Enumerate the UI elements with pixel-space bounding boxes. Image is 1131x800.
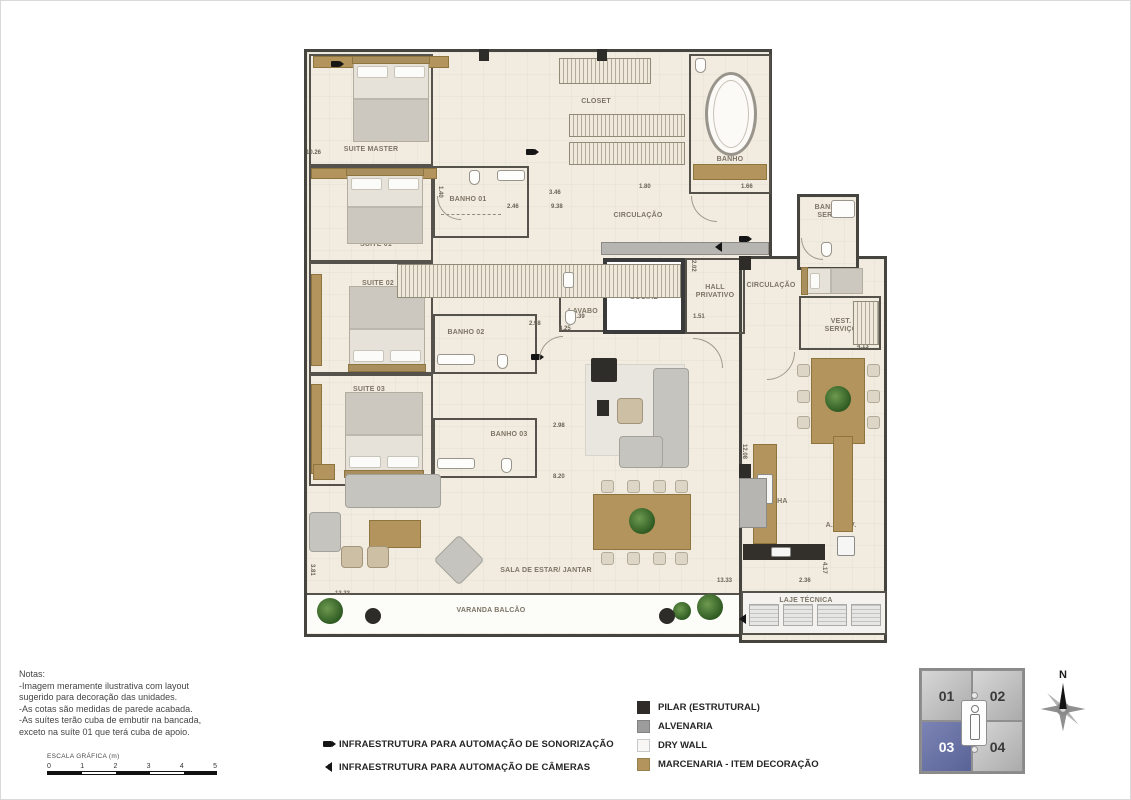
compass-rose-icon <box>1035 681 1091 737</box>
notes-title: Notas: <box>19 669 309 681</box>
kitchen-sink <box>771 547 791 557</box>
dining-chair <box>675 480 688 493</box>
dim: 12.08 <box>741 444 747 459</box>
legend-label: INFRAESTRUTURA PARA AUTOMAÇÃO DE SONORIZ… <box>339 739 614 750</box>
elevator-core-icon <box>961 700 987 746</box>
dim: 10.26 <box>306 150 321 156</box>
wardrobe <box>569 142 685 165</box>
dining-chair <box>675 552 688 565</box>
toilet <box>501 458 512 473</box>
tv-unit <box>591 358 617 382</box>
scale-tick: 0 <box>47 763 51 770</box>
shower <box>831 200 855 218</box>
dim: 13.33 <box>335 591 350 597</box>
sink-basin <box>563 272 574 288</box>
ac-condenser <box>783 604 813 626</box>
dim: 1.51 <box>693 314 705 320</box>
plant <box>673 602 691 620</box>
legend-row: MARCENARIA - ITEM DECORAÇÃO <box>637 758 819 771</box>
room-banho-02 <box>433 314 537 374</box>
bed-suite-03 <box>345 392 423 476</box>
room-banho-03 <box>433 418 537 478</box>
bed-suite-02 <box>349 286 425 370</box>
copa-chair <box>867 416 880 429</box>
copa-chair <box>797 416 810 429</box>
legend-label: INFRAESTRUTURA PARA AUTOMAÇÃO DE CÂMERAS <box>339 762 590 773</box>
sofa-chaise <box>619 436 663 468</box>
copa-chair <box>867 364 880 377</box>
bed-suite-master <box>353 58 429 142</box>
label-hall: HALL PRIVATIVO <box>692 284 738 300</box>
scale-ticks: 0 1 2 3 4 5 <box>47 763 217 770</box>
pillar <box>479 49 489 61</box>
camera-icon <box>331 61 340 67</box>
floor-drain <box>365 608 381 624</box>
dining-chair <box>601 552 614 565</box>
dim: 9.38 <box>551 204 563 210</box>
alvenaria-swatch <box>637 720 650 733</box>
sink-basin <box>437 458 475 469</box>
label-varanda: VARANDA BALCÃO <box>457 607 526 615</box>
alvenaria-block <box>739 478 767 528</box>
scale-tick: 3 <box>147 763 151 770</box>
dining-chair <box>627 552 640 565</box>
scale-label: ESCALA GRÁFICA (m) <box>47 753 227 760</box>
page: SUITE MASTER SUITE 01 SUITE 02 SUITE 03 … <box>0 0 1131 800</box>
scale-bar: ESCALA GRÁFICA (m) 0 1 2 3 4 5 <box>47 753 227 775</box>
scale-bar-graphic <box>47 771 217 775</box>
dining-chair <box>627 480 640 493</box>
marcenaria-swatch <box>637 758 650 771</box>
legend-row: PILAR (ESTRUTURAL) <box>637 701 819 714</box>
unit-keyplan: 01 02 03 04 <box>919 668 1025 774</box>
scale-tick: 4 <box>180 763 184 770</box>
dim: 1.66 <box>741 184 753 190</box>
legend-row: ALVENARIA <box>637 720 819 733</box>
vanity <box>693 164 767 180</box>
copa-chair <box>797 364 810 377</box>
camera-icon <box>323 738 339 750</box>
legend-label: DRY WALL <box>658 740 707 751</box>
notes-line: sugerido para decoração das unidades. <box>19 692 309 704</box>
notes: Notas: -Imagem meramente ilustrativa com… <box>19 669 309 738</box>
bed-service <box>803 268 863 294</box>
wardrobe <box>559 58 651 84</box>
ac-condenser <box>817 604 847 626</box>
elevator-dot <box>971 746 978 753</box>
pouf <box>341 546 363 568</box>
scale-tick: 1 <box>80 763 84 770</box>
scale-tick: 5 <box>213 763 217 770</box>
floor-plan: SUITE MASTER SUITE 01 SUITE 02 SUITE 03 … <box>301 46 901 646</box>
dining-chair <box>601 480 614 493</box>
label-banho: BANHO <box>717 156 744 164</box>
dim: 8.20 <box>553 474 565 480</box>
dim: 13.33 <box>717 578 732 584</box>
copa-chair <box>867 390 880 403</box>
compass-north-label: N <box>1035 669 1091 681</box>
pilar-swatch <box>637 701 650 714</box>
notes-line: -Imagem meramente ilustrativa com layout <box>19 681 309 693</box>
speaker-icon <box>323 761 339 773</box>
label-banho-03: BANHO 03 <box>491 431 528 439</box>
legend-row: DRY WALL <box>637 739 819 752</box>
legend-label: PILAR (ESTRUTURAL) <box>658 702 760 713</box>
speaker-icon <box>739 614 746 624</box>
dining-chair <box>653 480 666 493</box>
pillar <box>597 400 609 416</box>
shelving <box>853 301 879 345</box>
compass: N <box>1035 669 1091 741</box>
bathtub <box>705 72 757 156</box>
label-banho-02: BANHO 02 <box>448 329 485 337</box>
label-suite-master: SUITE MASTER <box>344 146 399 154</box>
service-counter <box>833 436 853 532</box>
washer <box>837 536 855 556</box>
side-table <box>313 464 335 480</box>
sofa <box>345 474 441 508</box>
notes-line: exceto na suíte 01 que terá cuba de apoi… <box>19 727 309 739</box>
pillar <box>739 256 751 270</box>
armchair <box>309 512 341 552</box>
camera-icon <box>526 149 535 155</box>
ac-condenser <box>749 604 779 626</box>
sink-basin <box>497 170 525 181</box>
wardrobe <box>569 114 685 137</box>
floor-drain <box>659 608 675 624</box>
toilet <box>469 170 480 185</box>
sink-basin <box>437 354 475 365</box>
ac-condenser <box>851 604 881 626</box>
scale-tick: 2 <box>113 763 117 770</box>
notes-line: -As cotas são medidas de parede acabada. <box>19 704 309 716</box>
plant <box>825 386 851 412</box>
camera-icon <box>739 236 748 242</box>
label-circulacao-right: CIRCULAÇÃO <box>746 282 795 290</box>
copa-chair <box>797 390 810 403</box>
plant <box>317 598 343 624</box>
legend-label: ALVENARIA <box>658 721 713 732</box>
automation-legend: INFRAESTRUTURA PARA AUTOMAÇÃO DE SONORIZ… <box>323 737 614 783</box>
dim: 2.36 <box>799 578 811 584</box>
dim: 2.46 <box>507 204 519 210</box>
notes-line: -As suítes terão cuba de embutir na banc… <box>19 715 309 727</box>
dim: 4.17 <box>821 562 827 574</box>
elevator-dot <box>971 692 978 699</box>
dim: 2.98 <box>529 321 541 327</box>
dim: 1.80 <box>639 184 651 190</box>
wardrobe-side <box>311 384 322 474</box>
ottoman <box>617 398 643 424</box>
plant <box>629 508 655 534</box>
legend-label: MARCENARIA - ITEM DECORAÇÃO <box>658 759 819 770</box>
bed-suite-01 <box>347 170 423 244</box>
wardrobe <box>397 264 681 298</box>
dim: 2.02 <box>690 260 696 272</box>
pillar <box>739 464 751 478</box>
legend-row: INFRAESTRUTURA PARA AUTOMAÇÃO DE SONORIZ… <box>323 737 614 751</box>
drywall-swatch <box>637 739 650 752</box>
wardrobe-side <box>311 274 322 366</box>
coffee-table <box>369 520 421 548</box>
dim: 2.98 <box>553 423 565 429</box>
dim: 3.46 <box>549 190 561 196</box>
dim: 3.81 <box>309 564 315 576</box>
toilet <box>565 310 576 325</box>
plant <box>697 594 723 620</box>
toilet <box>695 58 706 73</box>
pillar <box>597 49 607 61</box>
label-sala: SALA DE ESTAR/ JANTAR <box>500 567 592 575</box>
dim: 8.25 <box>559 326 571 332</box>
label-circulacao-top: CIRCULAÇÃO <box>613 212 662 220</box>
speaker-icon <box>715 242 722 252</box>
toilet <box>497 354 508 369</box>
materials-legend: PILAR (ESTRUTURAL) ALVENARIA DRY WALL MA… <box>637 701 819 777</box>
legend-row: INFRAESTRUTURA PARA AUTOMAÇÃO DE CÂMERAS <box>323 760 614 774</box>
pouf <box>367 546 389 568</box>
alvenaria-strip <box>601 242 769 255</box>
label-closet-a: CLOSET <box>581 98 611 106</box>
dining-chair <box>653 552 666 565</box>
